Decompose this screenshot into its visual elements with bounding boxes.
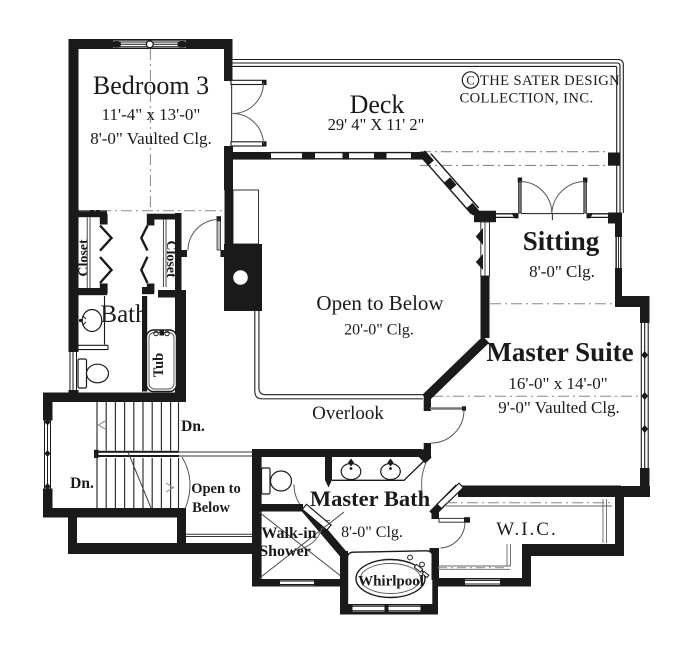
svg-text:Shower: Shower — [259, 543, 311, 560]
svg-text:16'-0" x 14'-0": 16'-0" x 14'-0" — [508, 374, 607, 393]
svg-text:Whirlpool: Whirlpool — [358, 574, 424, 590]
svg-text:Dn.: Dn. — [70, 475, 94, 492]
svg-text:Sitting: Sitting — [523, 226, 600, 256]
svg-text:THE SATER DESIGN: THE SATER DESIGN — [480, 73, 620, 89]
svg-text:W.I.C.: W.I.C. — [496, 519, 557, 540]
svg-text:Master Suite: Master Suite — [486, 337, 633, 367]
svg-text:11'-4" x 13'-0": 11'-4" x 13'-0" — [102, 105, 201, 124]
svg-text:Open to Below: Open to Below — [316, 291, 444, 315]
svg-text:Bath: Bath — [100, 301, 148, 328]
svg-text:Tub: Tub — [151, 353, 167, 377]
svg-text:COLLECTION, INC.: COLLECTION, INC. — [459, 91, 593, 107]
svg-text:8'-0" Clg.: 8'-0" Clg. — [529, 262, 595, 281]
svg-text:Closet: Closet — [77, 239, 92, 277]
svg-text:Bedroom 3: Bedroom 3 — [93, 71, 209, 100]
svg-text:Overlook: Overlook — [312, 403, 384, 424]
svg-text:Below: Below — [192, 500, 230, 516]
svg-text:9'-0" Vaulted Clg.: 9'-0" Vaulted Clg. — [498, 398, 620, 417]
svg-text:Open to: Open to — [191, 481, 241, 497]
svg-text:C: C — [466, 74, 474, 88]
svg-text:Walk-in: Walk-in — [261, 525, 316, 542]
svg-text:29' 4" X 11' 2": 29' 4" X 11' 2" — [328, 115, 425, 134]
svg-text:Master Bath: Master Bath — [310, 486, 431, 511]
svg-text:8'-0" Vaulted Clg.: 8'-0" Vaulted Clg. — [90, 129, 212, 148]
svg-text:Dn.: Dn. — [181, 418, 205, 435]
svg-text:8'-0" Clg.: 8'-0" Clg. — [341, 524, 403, 541]
svg-text:20'-0" Clg.: 20'-0" Clg. — [344, 322, 414, 339]
